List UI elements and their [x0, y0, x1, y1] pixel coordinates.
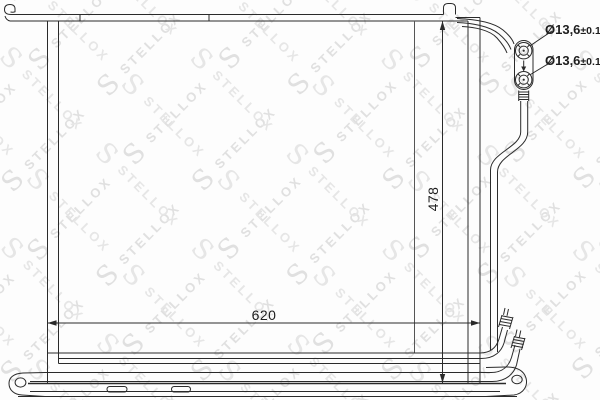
condenser-line-art — [0, 0, 600, 400]
port-block — [515, 41, 534, 102]
bottom-tray — [18, 327, 520, 397]
right-side-pipe — [491, 101, 528, 352]
port-1-tolerance-value: ±0.1 — [580, 25, 600, 37]
top-mounting-tab — [444, 4, 456, 15]
core-outline — [48, 21, 415, 384]
left-bracket-curl-icon — [5, 5, 17, 22]
port-2-diameter-value: Ø13,6 — [545, 53, 580, 68]
port-circle-2 — [516, 72, 532, 88]
left-mounting-foot — [9, 373, 45, 397]
port-diameter-label-2: Ø13,6±0.1 — [545, 52, 600, 70]
flow-arrow-icon — [521, 61, 526, 72]
port-diameter-label-1: Ø13,6±0.1 — [545, 21, 600, 39]
port-circle-1 — [516, 43, 532, 59]
crimp-fitting-top — [519, 91, 529, 102]
top-rail — [10, 15, 480, 22]
receiver-drier — [468, 18, 480, 385]
port-1-diameter-value: Ø13,6 — [545, 22, 580, 37]
width-dimension-label: 620 — [252, 307, 277, 323]
height-dimension-label: 478 — [425, 187, 441, 212]
condenser-technical-drawing: SSTELLOXSSTELLOXSSTELLOXSSTELLOXSSTELLOX… — [0, 0, 600, 400]
crimp-fitting-bottom-1 — [499, 308, 514, 329]
crimp-fitting-bottom-2 — [511, 330, 525, 351]
top-pipes — [457, 19, 514, 54]
port-2-tolerance-value: ±0.1 — [580, 56, 600, 68]
